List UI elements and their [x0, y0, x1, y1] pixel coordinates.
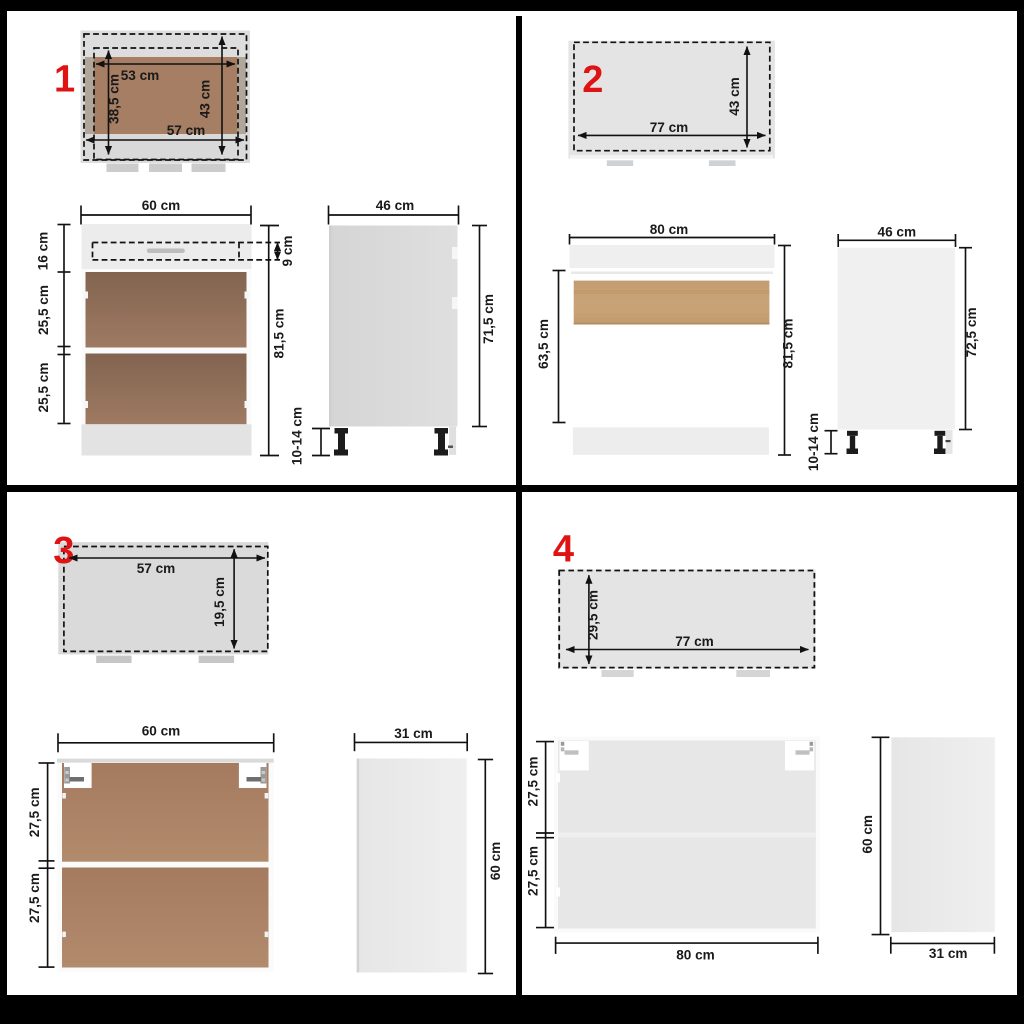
- svg-text:3: 3: [53, 530, 74, 572]
- svg-text:19,5 cm: 19,5 cm: [212, 577, 227, 627]
- svg-text:46 cm: 46 cm: [878, 225, 917, 240]
- svg-text:63,5 cm: 63,5 cm: [536, 319, 551, 369]
- svg-text:31 cm: 31 cm: [394, 726, 433, 741]
- svg-text:27,5 cm: 27,5 cm: [525, 846, 540, 896]
- svg-text:27,5 cm: 27,5 cm: [27, 787, 42, 837]
- svg-text:31 cm: 31 cm: [929, 946, 968, 961]
- svg-text:71,5 cm: 71,5 cm: [481, 294, 496, 344]
- svg-text:16 cm: 16 cm: [36, 232, 51, 271]
- svg-text:60 cm: 60 cm: [142, 198, 181, 213]
- svg-text:77 cm: 77 cm: [675, 634, 714, 649]
- svg-text:81,5 cm: 81,5 cm: [781, 319, 796, 369]
- svg-text:77 cm: 77 cm: [650, 120, 689, 135]
- svg-text:43 cm: 43 cm: [198, 80, 213, 119]
- svg-text:27,5 cm: 27,5 cm: [27, 873, 42, 923]
- svg-text:80 cm: 80 cm: [676, 948, 715, 963]
- svg-text:10-14 cm: 10-14 cm: [806, 413, 821, 471]
- svg-text:60 cm: 60 cm: [860, 815, 875, 854]
- svg-text:46 cm: 46 cm: [376, 198, 415, 213]
- svg-text:10-14 cm: 10-14 cm: [290, 407, 305, 465]
- svg-text:4: 4: [553, 529, 574, 571]
- svg-text:29,5 cm: 29,5 cm: [586, 590, 601, 640]
- svg-text:72,5 cm: 72,5 cm: [964, 307, 979, 357]
- svg-text:38,5 cm: 38,5 cm: [107, 74, 122, 124]
- svg-text:57 cm: 57 cm: [137, 561, 176, 576]
- svg-text:25,5 cm: 25,5 cm: [36, 363, 51, 413]
- svg-text:43 cm: 43 cm: [727, 77, 742, 116]
- svg-text:1: 1: [54, 58, 75, 100]
- svg-text:60 cm: 60 cm: [488, 842, 503, 881]
- svg-text:2: 2: [582, 59, 603, 101]
- svg-text:60 cm: 60 cm: [142, 724, 181, 739]
- svg-text:57 cm: 57 cm: [167, 123, 206, 138]
- svg-text:81,5 cm: 81,5 cm: [272, 309, 287, 359]
- svg-text:80 cm: 80 cm: [650, 222, 689, 237]
- svg-text:53 cm: 53 cm: [121, 68, 160, 83]
- svg-text:9 cm: 9 cm: [280, 236, 295, 267]
- svg-text:27,5 cm: 27,5 cm: [525, 757, 540, 807]
- svg-text:25,5 cm: 25,5 cm: [36, 285, 51, 335]
